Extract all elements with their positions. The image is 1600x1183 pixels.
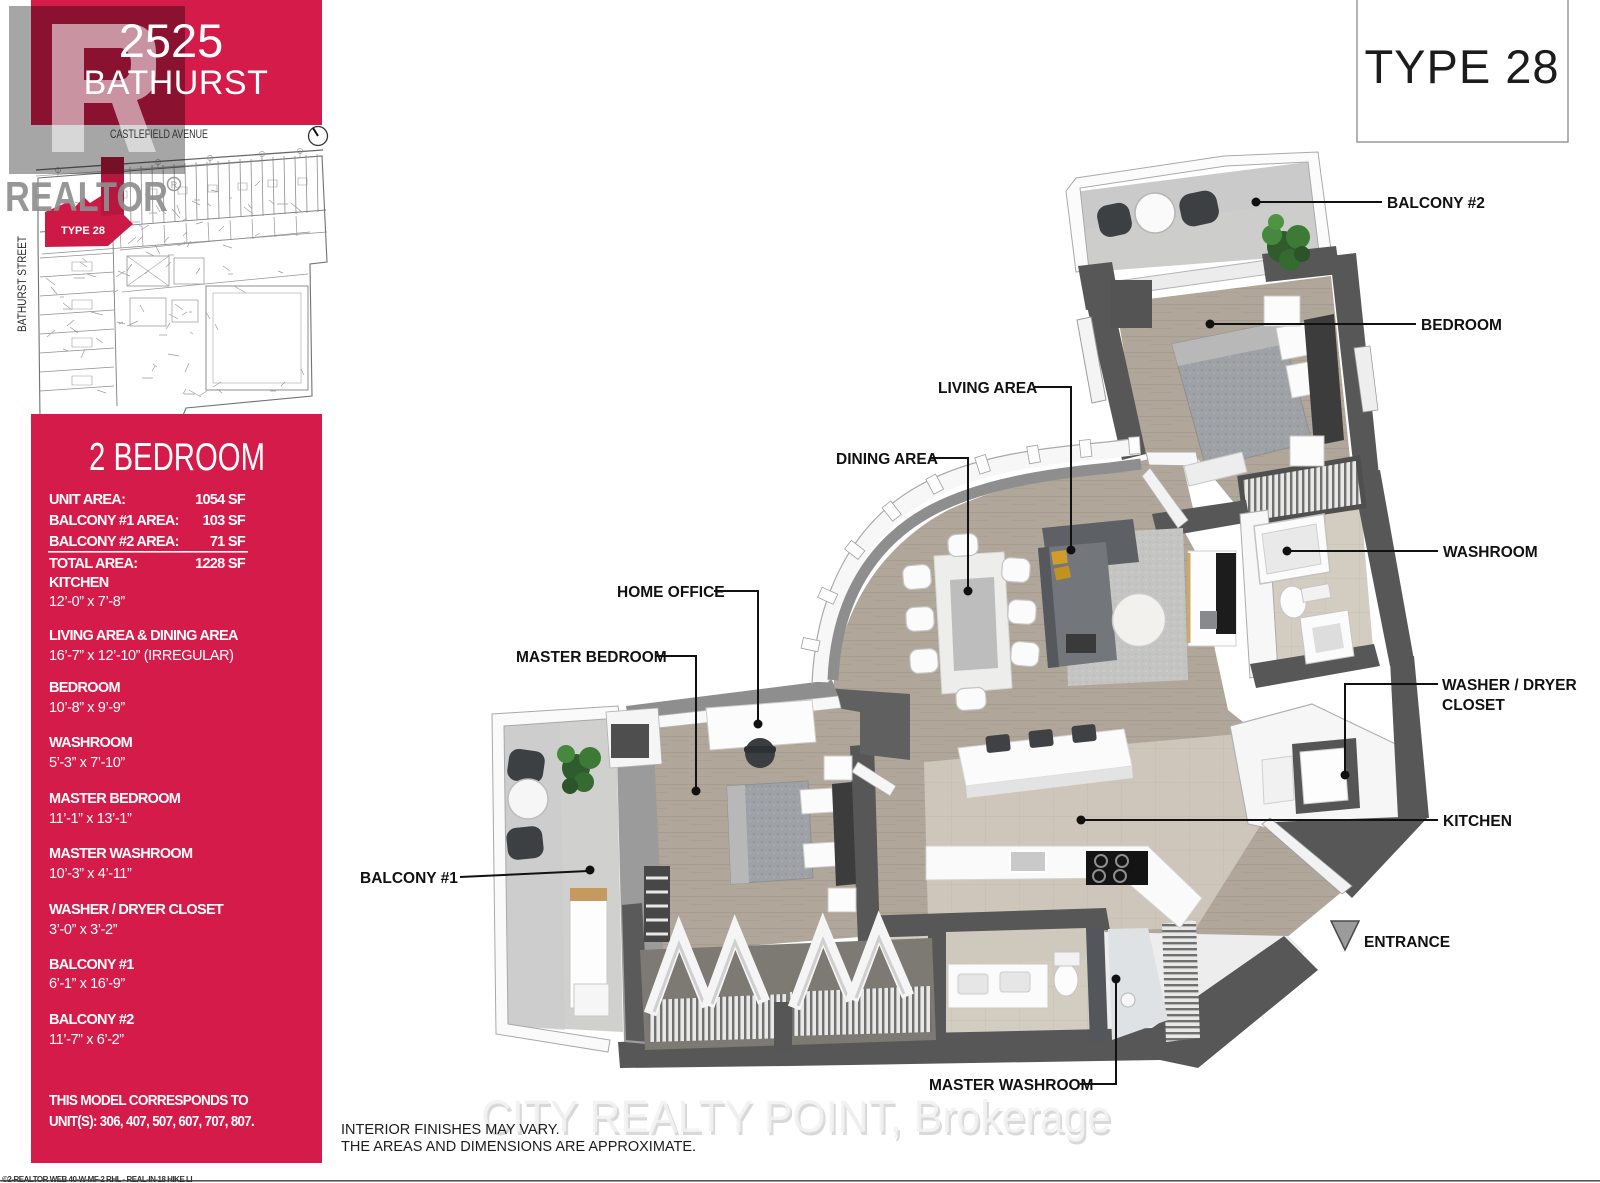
svg-text:CITY REALTY POINT, Brokerage: CITY REALTY POINT, Brokerage <box>481 1091 1111 1142</box>
svg-text:5’-3” x 7’-10”: 5’-3” x 7’-10” <box>49 755 125 771</box>
svg-text:KITCHEN: KITCHEN <box>49 575 109 591</box>
svg-text:BALCONY #1: BALCONY #1 <box>360 870 458 887</box>
svg-text:BALCONY #2: BALCONY #2 <box>49 1012 134 1028</box>
svg-text:12’-0” x 7’-8”: 12’-0” x 7’-8” <box>49 594 125 610</box>
svg-text:BALCONY #1: BALCONY #1 <box>49 957 134 973</box>
svg-text:2 BEDROOM: 2 BEDROOM <box>89 436 265 479</box>
svg-text:MASTER BEDROOM: MASTER BEDROOM <box>49 791 181 807</box>
svg-text:CLOSET: CLOSET <box>1442 697 1505 714</box>
svg-text:BALCONY #2: BALCONY #2 <box>1387 195 1485 212</box>
svg-text:THE AREAS AND DIMENSIONS ARE A: THE AREAS AND DIMENSIONS ARE APPROXIMATE… <box>341 1139 696 1155</box>
svg-text:1228 SF: 1228 SF <box>195 556 246 572</box>
svg-text:INTERIOR FINISHES MAY VARY.: INTERIOR FINISHES MAY VARY. <box>341 1122 560 1138</box>
svg-text:REALTOR: REALTOR <box>5 173 168 220</box>
svg-text:16’-7” x 12’-10” (IRREGULAR): 16’-7” x 12’-10” (IRREGULAR) <box>49 648 234 664</box>
svg-text:10’-8” x 9’-9”: 10’-8” x 9’-9” <box>49 700 125 716</box>
svg-text:BALCONY #1 AREA:: BALCONY #1 AREA: <box>49 513 179 529</box>
svg-text:103 SF: 103 SF <box>202 513 245 529</box>
svg-text:HOME OFFICE: HOME OFFICE <box>617 584 725 601</box>
svg-text:DINING AREA: DINING AREA <box>836 451 938 468</box>
svg-text:MASTER WASHROOM: MASTER WASHROOM <box>49 846 193 862</box>
svg-text:BEDROOM: BEDROOM <box>49 680 120 696</box>
svg-text:UNIT(S): 306, 407, 507, 607, 7: UNIT(S): 306, 407, 507, 607, 707, 807. <box>49 1114 255 1130</box>
svg-text:TYPE 28: TYPE 28 <box>61 225 105 237</box>
svg-text:WASHROOM: WASHROOM <box>49 735 133 751</box>
svg-text:2525: 2525 <box>119 14 224 67</box>
svg-text:BEDROOM: BEDROOM <box>1421 317 1502 334</box>
svg-text:TOTAL AREA:: TOTAL AREA: <box>49 556 137 572</box>
svg-text:WASHER / DRYER: WASHER / DRYER <box>1442 677 1577 694</box>
svg-text:WASHROOM: WASHROOM <box>1443 544 1538 561</box>
svg-text:R: R <box>171 180 178 190</box>
svg-text:BATHURST: BATHURST <box>84 64 269 102</box>
svg-text:BALCONY #2 AREA:: BALCONY #2 AREA: <box>49 534 179 550</box>
svg-text:MASTER BEDROOM: MASTER BEDROOM <box>516 649 667 666</box>
svg-text:KITCHEN: KITCHEN <box>1443 813 1512 830</box>
svg-text:11’-7” x 6’-2”: 11’-7” x 6’-2” <box>49 1032 124 1048</box>
svg-text:©2-REALTOR WEB 40-W-MF-2 RHL -: ©2-REALTOR WEB 40-W-MF-2 RHL - REAL-IN-1… <box>2 1175 192 1183</box>
svg-text:LIVING AREA & DINING AREA: LIVING AREA & DINING AREA <box>49 628 239 644</box>
svg-text:WASHER / DRYER CLOSET: WASHER / DRYER CLOSET <box>49 902 224 918</box>
svg-text:TYPE 28: TYPE 28 <box>1364 40 1559 93</box>
svg-text:11’-1” x 13’-1”: 11’-1” x 13’-1” <box>49 811 132 827</box>
svg-text:THIS MODEL CORRESPONDS TO: THIS MODEL CORRESPONDS TO <box>49 1093 248 1109</box>
svg-text:LIVING AREA: LIVING AREA <box>938 380 1037 397</box>
svg-text:10’-3” x 4’-11”: 10’-3” x 4’-11” <box>49 866 132 882</box>
svg-text:3’-0” x 3’-2”: 3’-0” x 3’-2” <box>49 922 118 938</box>
svg-text:1054 SF: 1054 SF <box>195 492 246 508</box>
svg-text:BATHURST STREET: BATHURST STREET <box>15 235 29 332</box>
svg-text:6’-1” x 16’-9”: 6’-1” x 16’-9” <box>49 976 125 992</box>
svg-text:ENTRANCE: ENTRANCE <box>1364 934 1450 951</box>
svg-text:71 SF: 71 SF <box>210 534 246 550</box>
svg-text:UNIT AREA:: UNIT AREA: <box>49 492 125 508</box>
svg-text:CASTLEFIELD AVENUE: CASTLEFIELD AVENUE <box>110 129 208 141</box>
